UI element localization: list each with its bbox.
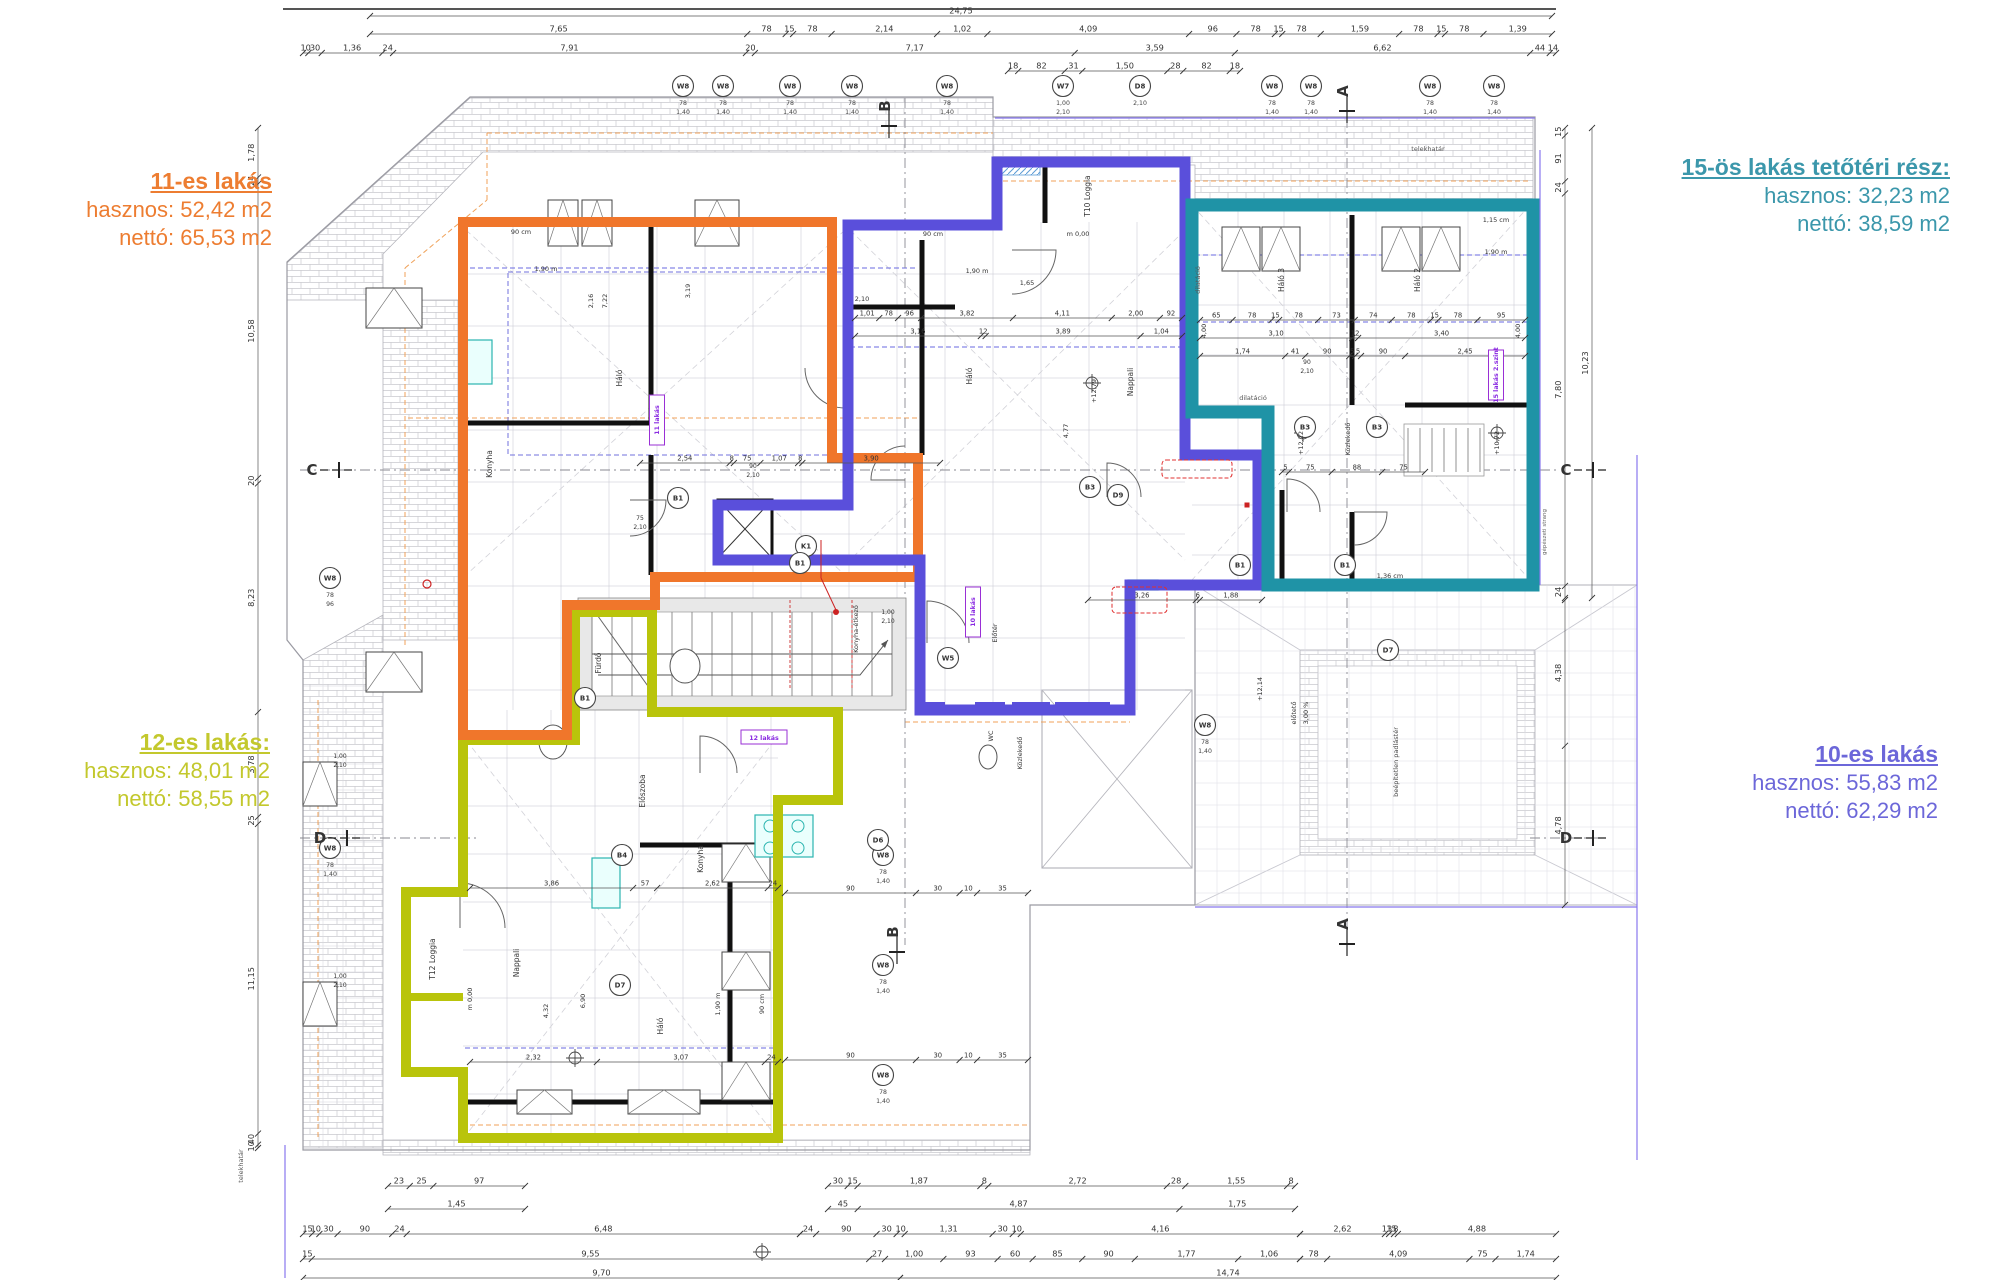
svg-text:3,00 %: 3,00 % (1302, 702, 1310, 725)
apartment-10-net-area: nettó: 62,29 m2 (1640, 797, 1938, 826)
svg-text:96: 96 (905, 310, 914, 318)
svg-text:D7: D7 (1383, 647, 1394, 655)
svg-text:Közlekedő: Közlekedő (1015, 737, 1024, 770)
svg-text:1,78: 1,78 (246, 144, 256, 162)
svg-text:8: 8 (798, 455, 802, 463)
svg-text:B: B (884, 926, 902, 937)
apartment-15-title: 15-ös lakás tetőtéri rész: (1650, 153, 1950, 182)
svg-text:+12,79: +12,79 (1090, 379, 1098, 403)
svg-text:10: 10 (311, 1224, 321, 1234)
svg-text:78: 78 (1307, 100, 1315, 107)
svg-text:1,06: 1,06 (1260, 1249, 1278, 1259)
svg-text:W8: W8 (784, 83, 797, 91)
svg-text:78: 78 (1413, 24, 1423, 34)
svg-text:78: 78 (884, 310, 893, 318)
apartment-15-label: 15-ös lakás tetőtéri rész: hasznos: 32,2… (1650, 153, 1950, 239)
svg-text:D8: D8 (1135, 83, 1146, 91)
svg-text:1,40: 1,40 (716, 109, 730, 116)
svg-text:W8: W8 (1305, 83, 1318, 91)
svg-text:4,87: 4,87 (1009, 1199, 1027, 1209)
svg-text:előtető: előtető (1289, 702, 1298, 725)
svg-text:B1: B1 (1340, 562, 1350, 570)
svg-text:73: 73 (1332, 312, 1341, 320)
svg-text:75: 75 (743, 455, 752, 463)
svg-text:3,07: 3,07 (673, 1054, 688, 1062)
svg-text:30: 30 (323, 1224, 333, 1234)
apartment-15-useful-area: hasznos: 32,23 m2 (1650, 182, 1950, 211)
svg-text:78: 78 (879, 979, 887, 986)
svg-text:1,07: 1,07 (772, 455, 787, 463)
svg-text:1,36: 1,36 (343, 43, 361, 53)
svg-text:28: 28 (1170, 61, 1180, 71)
svg-text:1,77: 1,77 (1177, 1249, 1195, 1259)
svg-text:31: 31 (1068, 61, 1078, 71)
svg-text:1,39: 1,39 (1509, 24, 1527, 34)
svg-text:Konyha: Konyha (696, 845, 705, 873)
svg-text:96: 96 (1208, 24, 1218, 34)
svg-text:2,32: 2,32 (526, 1054, 541, 1062)
svg-text:1,40: 1,40 (876, 1098, 890, 1105)
svg-text:10,58: 10,58 (246, 319, 256, 342)
svg-text:1,04: 1,04 (1154, 328, 1169, 336)
svg-text:Háló 2: Háló 2 (1413, 268, 1422, 292)
svg-text:1,00: 1,00 (333, 973, 347, 980)
svg-text:3,19: 3,19 (684, 284, 692, 298)
svg-text:1,40: 1,40 (845, 109, 859, 116)
svg-text:2,54: 2,54 (677, 455, 692, 463)
svg-text:Háló 3: Háló 3 (1277, 268, 1286, 292)
svg-text:88: 88 (1353, 464, 1362, 472)
svg-text:1,40: 1,40 (1265, 109, 1279, 116)
svg-text:T10 Loggia: T10 Loggia (1083, 175, 1092, 217)
svg-text:44: 44 (1535, 43, 1545, 53)
svg-text:1,55: 1,55 (1227, 1176, 1245, 1186)
svg-text:+12,14: +12,14 (1256, 677, 1264, 701)
svg-text:18: 18 (1230, 61, 1240, 71)
svg-text:C: C (1560, 461, 1571, 479)
svg-text:4,09: 4,09 (1389, 1249, 1407, 1259)
svg-text:15: 15 (1436, 24, 1446, 34)
svg-text:B1: B1 (673, 495, 683, 503)
svg-text:78: 78 (1296, 24, 1306, 34)
svg-text:dilatáció: dilatáció (1239, 394, 1267, 402)
svg-text:82: 82 (1201, 61, 1211, 71)
svg-text:beépítetlen padlástér: beépítetlen padlástér (1392, 727, 1400, 797)
svg-text:8: 8 (730, 455, 734, 463)
svg-text:75: 75 (1306, 464, 1315, 472)
apartment-11-useful-area: hasznos: 52,42 m2 (30, 196, 272, 225)
svg-text:3,89: 3,89 (1056, 328, 1071, 336)
svg-text:W8: W8 (1199, 722, 1212, 730)
svg-text:15: 15 (1553, 127, 1563, 137)
svg-text:A: A (1334, 85, 1352, 97)
svg-text:D7: D7 (615, 982, 626, 990)
svg-text:75: 75 (1477, 1249, 1487, 1259)
svg-text:78: 78 (1201, 739, 1209, 746)
svg-text:24: 24 (1553, 182, 1563, 192)
svg-text:Háló: Háló (965, 367, 974, 384)
svg-text:24: 24 (769, 880, 778, 888)
svg-text:3,59: 3,59 (1146, 43, 1164, 53)
svg-text:gépészeti strang: gépészeti strang (1541, 509, 1548, 555)
svg-text:35: 35 (998, 885, 1007, 893)
svg-text:8: 8 (1393, 1224, 1398, 1234)
svg-text:1,90 m: 1,90 m (535, 265, 558, 273)
svg-text:B3: B3 (1300, 424, 1310, 432)
svg-text:90 cm: 90 cm (511, 228, 531, 236)
svg-text:T12 Loggia: T12 Loggia (428, 938, 437, 980)
svg-text:1,01: 1,01 (860, 310, 875, 318)
svg-text:3,82: 3,82 (959, 310, 974, 318)
svg-text:W8: W8 (1424, 83, 1437, 91)
svg-text:20: 20 (745, 43, 755, 53)
svg-text:1,40: 1,40 (1487, 109, 1501, 116)
svg-text:28: 28 (1171, 1176, 1181, 1186)
svg-text:14,74: 14,74 (1216, 1268, 1239, 1278)
apartment-12-net-area: nettó: 58,55 m2 (30, 785, 270, 814)
svg-text:2,10: 2,10 (1300, 368, 1314, 375)
svg-text:8,23: 8,23 (246, 589, 256, 607)
svg-text:15: 15 (302, 1249, 312, 1259)
svg-text:1,75: 1,75 (1228, 1199, 1246, 1209)
svg-text:W8: W8 (1266, 83, 1279, 91)
svg-text:15 lakás 2.szint: 15 lakás 2.szint (1492, 347, 1500, 403)
svg-text:Nappali: Nappali (1126, 368, 1135, 397)
svg-text:WC: WC (987, 730, 995, 741)
svg-text:1,45: 1,45 (447, 1199, 465, 1209)
svg-text:78: 78 (719, 100, 727, 107)
svg-text:78: 78 (786, 100, 794, 107)
svg-text:2,72: 2,72 (1068, 1176, 1086, 1186)
svg-text:85: 85 (1052, 1249, 1062, 1259)
svg-text:1,40: 1,40 (1304, 109, 1318, 116)
svg-text:1,31: 1,31 (940, 1224, 958, 1234)
svg-text:1,90 m: 1,90 m (714, 993, 722, 1016)
svg-text:2,10: 2,10 (333, 982, 347, 989)
svg-text:2,00: 2,00 (1128, 310, 1143, 318)
svg-text:Előtér: Előtér (990, 623, 999, 642)
svg-text:D: D (314, 829, 326, 847)
svg-text:Fürdő: Fürdő (594, 652, 603, 673)
svg-text:telekhatár: telekhatár (237, 1149, 245, 1183)
svg-text:Közlekedő: Közlekedő (1343, 423, 1352, 456)
svg-text:2,62: 2,62 (705, 880, 720, 888)
svg-text:1,15 cm: 1,15 cm (1483, 216, 1509, 224)
svg-text:5: 5 (1350, 348, 1354, 356)
svg-text:4,11: 4,11 (1055, 310, 1070, 318)
svg-text:2,45: 2,45 (1457, 348, 1472, 356)
svg-text:41: 41 (1291, 348, 1300, 356)
svg-text:4,09: 4,09 (1079, 24, 1097, 34)
svg-text:12: 12 (1351, 330, 1360, 338)
apartment-10-title: 10-es lakás (1640, 740, 1938, 769)
apartment-11-title: 11-es lakás (30, 167, 272, 196)
svg-text:10: 10 (246, 1141, 256, 1151)
svg-text:5: 5 (1356, 348, 1360, 356)
svg-text:9,55: 9,55 (581, 1249, 599, 1259)
svg-text:6: 6 (1196, 592, 1200, 600)
svg-text:W5: W5 (942, 655, 955, 663)
svg-text:1,00: 1,00 (333, 753, 347, 760)
svg-text:B4: B4 (617, 852, 627, 860)
svg-text:1,40: 1,40 (876, 878, 890, 885)
svg-text:4,00: 4,00 (1514, 324, 1522, 338)
svg-text:91: 91 (1553, 153, 1563, 163)
svg-text:11,15: 11,15 (246, 967, 256, 990)
floor-plan-page: 24,757,657815782,141,024,09967815781,597… (0, 0, 2014, 1280)
svg-text:90: 90 (841, 1224, 851, 1234)
svg-text:25: 25 (416, 1176, 426, 1186)
svg-text:10: 10 (1012, 1224, 1022, 1234)
svg-text:3,16: 3,16 (910, 328, 925, 336)
svg-text:57: 57 (641, 880, 650, 888)
svg-text:W8: W8 (846, 83, 859, 91)
svg-text:telekhatár: telekhatár (1411, 145, 1445, 153)
svg-text:90: 90 (749, 463, 757, 470)
svg-text:B3: B3 (1372, 424, 1382, 432)
svg-text:10: 10 (895, 1224, 905, 1234)
svg-text:6,62: 6,62 (1373, 43, 1391, 53)
svg-text:78: 78 (879, 1089, 887, 1096)
svg-text:12 lakás: 12 lakás (749, 734, 779, 742)
svg-text:1,40: 1,40 (783, 109, 797, 116)
svg-text:1,90 m: 1,90 m (1485, 248, 1508, 256)
svg-text:45: 45 (838, 1199, 848, 1209)
svg-text:1,59: 1,59 (1351, 24, 1369, 34)
svg-text:D9: D9 (1113, 492, 1124, 500)
svg-text:30: 30 (310, 43, 320, 53)
svg-text:24,75: 24,75 (949, 6, 972, 16)
svg-text:4,00: 4,00 (1200, 324, 1208, 338)
svg-text:90: 90 (1103, 1249, 1113, 1259)
svg-text:78: 78 (326, 862, 334, 869)
svg-text:W8: W8 (877, 852, 890, 860)
svg-text:B1: B1 (795, 560, 805, 568)
apartment-11-label: 11-es lakás hasznos: 52,42 m2 nettó: 65,… (30, 167, 272, 253)
svg-text:90: 90 (360, 1224, 370, 1234)
svg-text:3,40: 3,40 (1434, 330, 1449, 338)
svg-text:15: 15 (1430, 312, 1439, 320)
svg-text:75: 75 (1399, 464, 1408, 472)
svg-text:9,70: 9,70 (592, 1268, 610, 1278)
svg-text:W8: W8 (941, 83, 954, 91)
svg-text:W8: W8 (324, 575, 337, 583)
svg-text:7,91: 7,91 (560, 43, 578, 53)
svg-text:7,80: 7,80 (1553, 381, 1563, 399)
svg-text:7,65: 7,65 (549, 24, 567, 34)
svg-text:30: 30 (997, 1224, 1007, 1234)
svg-text:3,26: 3,26 (1134, 592, 1149, 600)
svg-text:75: 75 (636, 515, 644, 522)
svg-text:15: 15 (784, 24, 794, 34)
svg-text:W8: W8 (877, 962, 890, 970)
svg-text:1,40: 1,40 (323, 871, 337, 878)
svg-text:2,10: 2,10 (633, 524, 647, 531)
svg-text:+10,72: +10,72 (1493, 431, 1501, 455)
svg-text:2,10: 2,10 (881, 618, 895, 625)
apartment-15-net-area: nettó: 38,59 m2 (1650, 210, 1950, 239)
svg-text:96: 96 (326, 601, 334, 608)
svg-text:8: 8 (1288, 1176, 1293, 1186)
svg-text:4,16: 4,16 (1151, 1224, 1169, 1234)
svg-text:78: 78 (943, 100, 951, 107)
svg-text:78: 78 (807, 24, 817, 34)
svg-text:2,10: 2,10 (1133, 100, 1147, 107)
svg-text:4,32: 4,32 (542, 1004, 550, 1018)
svg-text:10: 10 (964, 1052, 973, 1060)
apartment-11-net-area: nettó: 65,53 m2 (30, 224, 272, 253)
svg-text:15: 15 (1273, 24, 1283, 34)
svg-text:90 cm: 90 cm (923, 230, 943, 238)
svg-text:W8: W8 (1488, 83, 1501, 91)
svg-text:93: 93 (965, 1249, 975, 1259)
svg-text:1,00: 1,00 (881, 609, 895, 616)
svg-text:23: 23 (394, 1176, 404, 1186)
svg-text:78: 78 (1454, 312, 1463, 320)
svg-text:m 0,00: m 0,00 (1067, 230, 1090, 238)
svg-text:15: 15 (1271, 312, 1280, 320)
svg-text:2,10: 2,10 (1056, 109, 1070, 116)
svg-text:27: 27 (872, 1249, 882, 1259)
svg-text:90: 90 (846, 885, 855, 893)
svg-text:25: 25 (246, 815, 256, 825)
svg-text:78: 78 (679, 100, 687, 107)
svg-text:6,48: 6,48 (594, 1224, 612, 1234)
apartment-12-label: 12-es lakás: hasznos: 48,01 m2 nettó: 58… (30, 728, 270, 814)
svg-text:Konyha: Konyha (485, 450, 494, 478)
svg-text:30: 30 (933, 1052, 942, 1060)
svg-text:12: 12 (979, 328, 988, 336)
svg-text:m 0,00: m 0,00 (466, 988, 474, 1011)
svg-text:1,00: 1,00 (1056, 100, 1070, 107)
svg-text:1,40: 1,40 (940, 109, 954, 116)
svg-text:K1: K1 (801, 543, 811, 551)
svg-text:1,36 cm: 1,36 cm (1377, 572, 1403, 580)
svg-text:1,74: 1,74 (1517, 1249, 1535, 1259)
svg-text:1,65: 1,65 (1020, 279, 1034, 287)
svg-text:dilatáció: dilatáció (1194, 266, 1202, 294)
svg-text:60: 60 (1010, 1249, 1020, 1259)
svg-text:C: C (306, 461, 317, 479)
svg-text:14: 14 (1548, 43, 1558, 53)
svg-text:30: 30 (833, 1176, 843, 1186)
svg-text:1,40: 1,40 (1198, 748, 1212, 755)
svg-text:7,17: 7,17 (906, 43, 924, 53)
svg-text:90: 90 (1303, 359, 1311, 366)
svg-text:1,40: 1,40 (1423, 109, 1437, 116)
svg-text:35: 35 (998, 1052, 1007, 1060)
svg-text:4,88: 4,88 (1468, 1224, 1486, 1234)
svg-text:1,50: 1,50 (1116, 61, 1134, 71)
svg-text:78: 78 (1268, 100, 1276, 107)
svg-text:Háló: Háló (656, 1017, 665, 1034)
svg-text:78: 78 (1308, 1249, 1318, 1259)
svg-text:11 lakás: 11 lakás (653, 405, 661, 435)
svg-text:Konyha-étkező: Konyha-étkező (851, 605, 860, 653)
svg-text:1,88: 1,88 (1223, 592, 1238, 600)
svg-text:1,40: 1,40 (676, 109, 690, 116)
svg-text:18: 18 (1008, 61, 1018, 71)
svg-text:Előszoba: Előszoba (638, 774, 647, 807)
svg-text:78: 78 (848, 100, 856, 107)
svg-text:20: 20 (246, 475, 256, 485)
svg-text:8: 8 (982, 1176, 987, 1186)
svg-text:B1: B1 (1235, 562, 1245, 570)
svg-text:65: 65 (1212, 312, 1221, 320)
svg-text:3,10: 3,10 (1269, 330, 1284, 338)
svg-text:6,90: 6,90 (579, 994, 587, 1008)
svg-text:1,40: 1,40 (876, 988, 890, 995)
svg-text:24: 24 (383, 43, 393, 53)
svg-text:1,90 m: 1,90 m (966, 267, 989, 275)
svg-text:15: 15 (847, 1176, 857, 1186)
svg-text:10,23: 10,23 (1580, 351, 1590, 374)
svg-text:30: 30 (933, 885, 942, 893)
svg-text:D6: D6 (873, 837, 884, 845)
svg-text:10: 10 (964, 885, 973, 893)
svg-text:78: 78 (1407, 312, 1416, 320)
svg-text:78: 78 (1426, 100, 1434, 107)
svg-text:10 lakás: 10 lakás (969, 597, 977, 627)
svg-text:B1: B1 (580, 695, 590, 703)
svg-text:W8: W8 (877, 1072, 890, 1080)
apartment-10-useful-area: hasznos: 55,83 m2 (1640, 769, 1938, 798)
svg-text:Háló: Háló (615, 369, 624, 386)
svg-text:78: 78 (1294, 312, 1303, 320)
svg-text:24: 24 (767, 1054, 776, 1062)
svg-text:3,90: 3,90 (864, 455, 879, 463)
svg-text:2,16: 2,16 (587, 294, 595, 308)
svg-text:24: 24 (803, 1224, 813, 1234)
svg-text:82: 82 (1036, 61, 1046, 71)
svg-text:95: 95 (1497, 312, 1506, 320)
svg-text:30: 30 (881, 1224, 891, 1234)
svg-text:78: 78 (761, 24, 771, 34)
svg-text:78: 78 (1250, 24, 1260, 34)
svg-text:78: 78 (1490, 100, 1498, 107)
svg-text:4,77: 4,77 (1062, 424, 1070, 438)
svg-text:D: D (1560, 829, 1572, 847)
apartment-10-label: 10-es lakás hasznos: 55,83 m2 nettó: 62,… (1640, 740, 1938, 826)
svg-text:2,10: 2,10 (333, 762, 347, 769)
svg-text:24: 24 (394, 1224, 404, 1234)
svg-text:24: 24 (1553, 587, 1563, 597)
svg-text:78: 78 (879, 869, 887, 876)
svg-text:1,00: 1,00 (905, 1249, 923, 1259)
apartment-12-useful-area: hasznos: 48,01 m2 (30, 757, 270, 786)
apartment-12-title: 12-es lakás: (30, 728, 270, 757)
svg-text:W8: W8 (677, 83, 690, 91)
svg-text:Nappali: Nappali (512, 949, 521, 978)
svg-text:+12,22: +12,22 (1297, 431, 1305, 455)
svg-text:1,87: 1,87 (910, 1176, 928, 1186)
svg-text:74: 74 (1369, 312, 1378, 320)
svg-text:90 cm: 90 cm (758, 994, 766, 1014)
svg-text:1,02: 1,02 (953, 24, 971, 34)
svg-text:90: 90 (1379, 348, 1388, 356)
svg-text:2,10: 2,10 (855, 295, 869, 303)
svg-text:B: B (876, 100, 894, 111)
svg-text:78: 78 (1459, 24, 1469, 34)
svg-text:97: 97 (474, 1176, 484, 1186)
svg-text:2,62: 2,62 (1333, 1224, 1351, 1234)
svg-text:78: 78 (1248, 312, 1257, 320)
svg-text:1,74: 1,74 (1235, 348, 1250, 356)
svg-text:3,86: 3,86 (544, 880, 559, 888)
svg-text:2,14: 2,14 (875, 24, 893, 34)
svg-text:92: 92 (1167, 310, 1176, 318)
svg-text:B3: B3 (1085, 484, 1095, 492)
